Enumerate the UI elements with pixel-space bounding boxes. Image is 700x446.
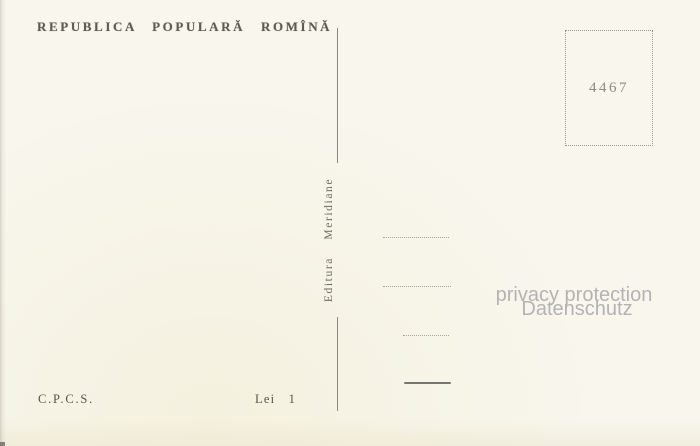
printer-mark: C.P.C.S. bbox=[38, 392, 94, 407]
postcard-back-scan: REPUBLICA POPULARĂ ROMÎNĂ 4467 Editura M… bbox=[0, 0, 700, 446]
address-dotted-line bbox=[383, 286, 451, 287]
stamp-catalog-number: 4467 bbox=[566, 80, 652, 97]
publisher-vertical-text: Editura Meridiane bbox=[323, 160, 339, 320]
country-header: REPUBLICA POPULARĂ ROMÎNĂ bbox=[37, 19, 332, 35]
address-solid-line bbox=[404, 382, 451, 384]
scan-edge-artifact bbox=[0, 442, 5, 446]
price-label: Lei 1 bbox=[255, 392, 296, 407]
address-dotted-line bbox=[403, 335, 449, 336]
address-dotted-line bbox=[383, 237, 449, 238]
divider-line-lower bbox=[337, 317, 338, 411]
divider-line-upper bbox=[337, 28, 338, 163]
stamp-box: 4467 bbox=[565, 30, 653, 146]
privacy-watermark: privacy protection Datenschutz bbox=[483, 288, 665, 316]
